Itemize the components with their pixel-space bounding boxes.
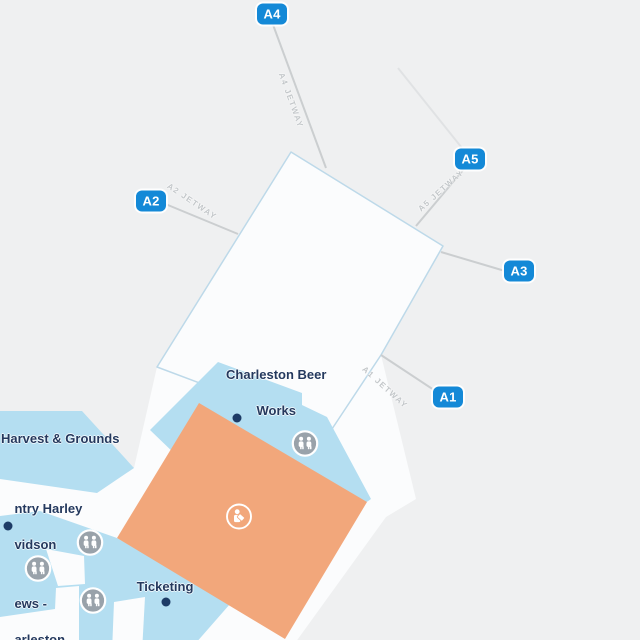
gate-badge-a3[interactable]: A3 [504,261,534,282]
poi-dot-beer-works[interactable] [233,414,242,423]
poi-label-line: Charleston Beer [226,367,326,382]
poi-label-line: Works [256,403,296,418]
restroom-icon[interactable] [77,529,104,561]
ticket-counter-icon[interactable] [225,503,253,536]
jetway-line-a3 [441,252,505,271]
poi-dot-ticketing[interactable] [162,598,171,607]
walkway-gap [112,597,145,640]
poi-label-line: arleston [14,632,65,640]
area-harvest-grounds [0,411,134,493]
gate-badge-a2[interactable]: A2 [136,191,166,212]
poi-label-line: ntry Harley [14,501,82,516]
gate-badge-a4[interactable]: A4 [257,4,287,25]
poi-label-harvest-grounds[interactable]: Harvest & Grounds [1,430,119,448]
poi-label-line: vidson [14,537,56,552]
poi-label-ticketing[interactable]: Ticketing [137,578,194,596]
gate-badge-a5[interactable]: A5 [455,149,485,170]
poi-label-line: ews - [14,596,47,611]
poi-dot-harley-davidson[interactable] [4,522,13,531]
jetway-line-a4 [272,22,326,168]
restroom-icon[interactable] [292,430,319,462]
airport-terminal-map[interactable]: A4 JETWAY A2 JETWAY A5 JETWAY A1 JETWAY … [0,0,640,640]
gate-badge-a1[interactable]: A1 [433,387,463,408]
restroom-icon[interactable] [25,555,52,587]
restroom-icon[interactable] [80,587,107,619]
poi-label-charleston-beer-works[interactable]: Charleston Beer Works [212,348,327,438]
jetway-line-a5-upper [398,68,462,148]
